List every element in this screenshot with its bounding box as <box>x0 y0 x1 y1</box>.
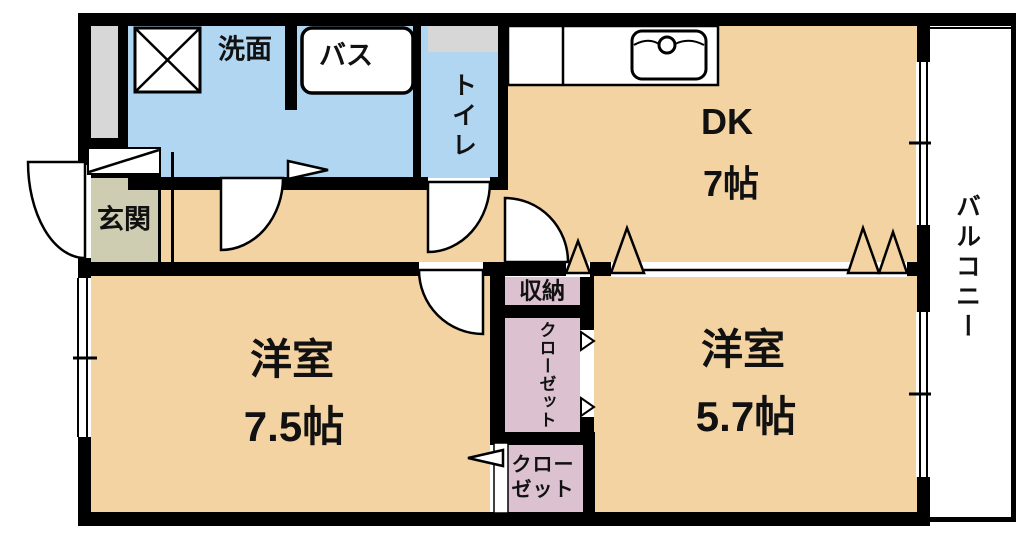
closet-middle-door <box>580 330 594 417</box>
pipe-shaft <box>91 26 118 138</box>
dk-size-label: 7帖 <box>703 166 759 202</box>
storage-label: 収納 <box>519 280 565 303</box>
washing-machine <box>135 28 200 92</box>
floorplan: 洗面 バス トイレ DK 7帖 玄関 洋室 7.5帖 洋室 5.7帖 収納 クロ… <box>0 0 1024 538</box>
western-room-1-label: 洋室 <box>250 339 334 381</box>
bath-label: バス <box>319 43 373 70</box>
toilet-label: トイレ <box>450 72 475 162</box>
dk-label: DK <box>701 104 753 140</box>
sink-faucet <box>659 37 675 53</box>
closet-middle-label: クローゼット <box>538 321 555 429</box>
entrance-label: 玄関 <box>97 207 151 234</box>
washroom-label: 洗面 <box>218 37 272 64</box>
shoe-cabinet <box>88 148 160 174</box>
balcony-label: バルコニー <box>954 193 979 343</box>
western-room-2-floor <box>594 268 917 512</box>
kitchen-sink <box>632 31 706 79</box>
western-room-2-label: 洋室 <box>701 329 785 371</box>
western-room-1-floor <box>91 276 490 512</box>
closet-bottom-label-line2: ゼット <box>512 480 575 500</box>
toilet-tank <box>428 26 498 52</box>
western-room-1-size: 7.5帖 <box>244 406 344 448</box>
closet-bottom-label-line1: クロー <box>512 455 575 475</box>
western-room-2-size: 5.7帖 <box>696 396 796 438</box>
door-arc-entrance <box>28 162 85 258</box>
